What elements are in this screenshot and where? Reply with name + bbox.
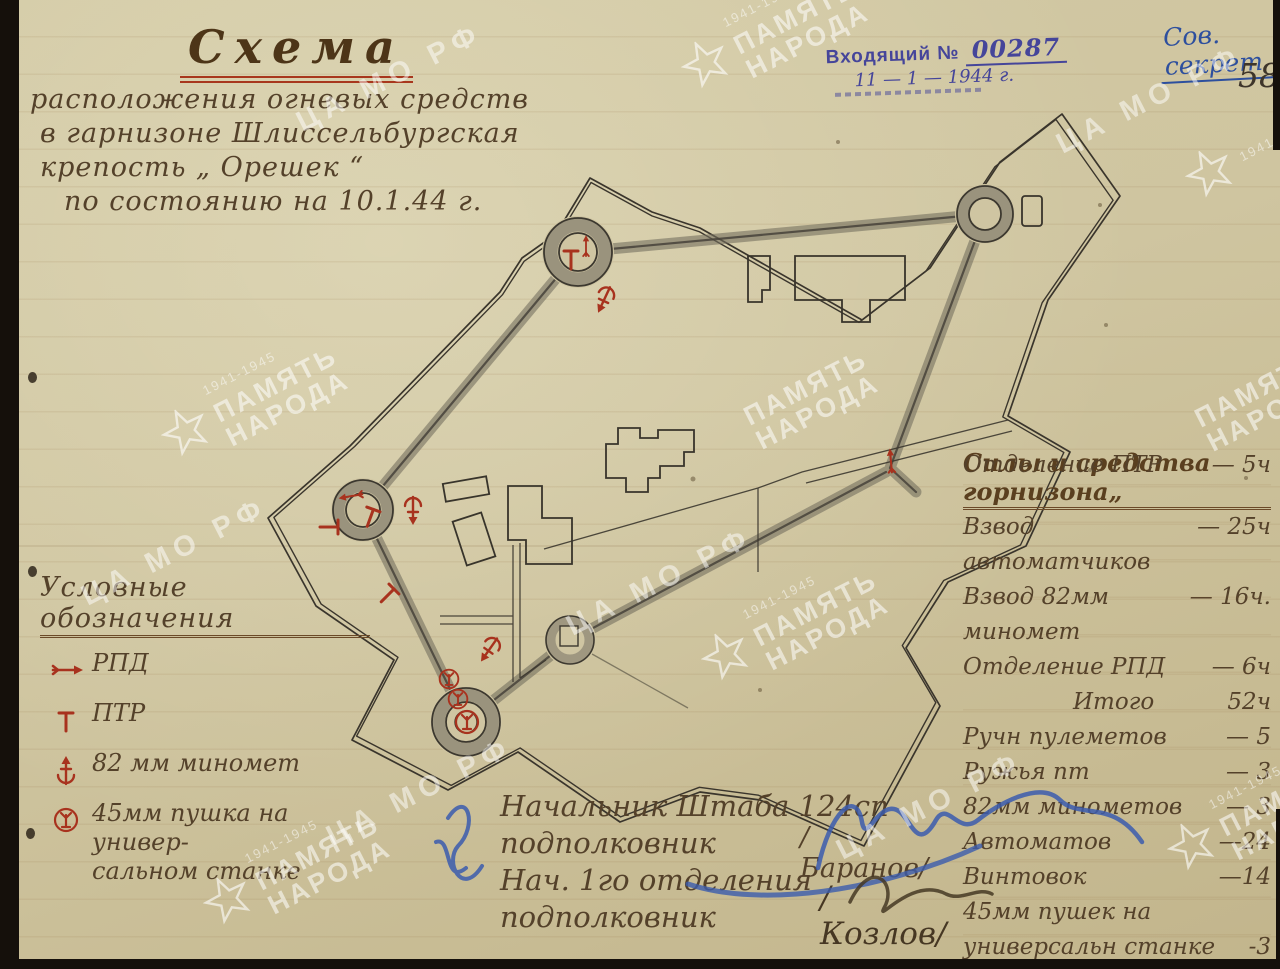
gun45-symbol-icon xyxy=(40,802,92,838)
forces-row-label: Взвод автоматчиков xyxy=(963,510,1197,580)
forces-row: Винтовок—14 xyxy=(963,860,1271,895)
forces-row: Автоматов—24 xyxy=(963,825,1271,860)
ptr-symbol-icon xyxy=(40,702,92,738)
mortar-map-symbol xyxy=(591,284,617,316)
title-block: Схема расположения огневых средств в гар… xyxy=(30,20,570,219)
rpd-symbol-icon xyxy=(40,652,92,688)
garrison-forces-list: Силы и средства горнизона„ Взвод автомат… xyxy=(963,448,1271,965)
tactical-symbols-layer xyxy=(320,235,895,733)
forces-row: Ручн пулеметов— 5 xyxy=(963,720,1271,755)
signature-name-2: /Козлов/ xyxy=(820,880,946,952)
forces-row-value: — 6ч xyxy=(1212,650,1271,685)
title-line-4: по состоянию на 10.1.44 г. xyxy=(30,185,570,219)
signature-name-1: /Баранов/ xyxy=(800,822,928,884)
forces-row-label: Винтовок xyxy=(963,860,1087,895)
legend-items: РПДПТР82 мм миномет45мм пушка на универ-… xyxy=(40,649,370,886)
scanned-document-page: Схема расположения огневых средств в гар… xyxy=(0,0,1280,969)
title-line-3: крепость „ Орешек “ xyxy=(30,151,570,185)
forces-row: Отделение РПД— 6ч xyxy=(963,650,1271,685)
forces-row-value: — 3 xyxy=(1226,790,1271,825)
forces-row-label: 45мм пушек на xyxy=(963,895,1151,930)
forces-row-value: — 3 xyxy=(1226,755,1271,790)
forces-row-value: — 25ч xyxy=(1197,510,1271,580)
mortar-symbol-icon xyxy=(40,752,92,788)
forces-row-value: — 5 xyxy=(1226,720,1271,755)
signature-role-1: Начальник Штаба 124сп xyxy=(500,788,889,825)
forces-row-value: —14 xyxy=(1219,860,1271,895)
forces-row-label: Итого xyxy=(1073,685,1154,720)
legend-item-label: ПТР xyxy=(92,699,145,728)
legend-item-rpd: РПД xyxy=(40,649,370,688)
mortar-map-symbol xyxy=(405,497,421,525)
forces-row-value: 52ч xyxy=(1227,685,1271,720)
forces-rows: Взвод автоматчиков— 25чВзвод 82мм миноме… xyxy=(963,510,1271,965)
legend-item-gun45: 45мм пушка на универ-сальном станке xyxy=(40,799,370,886)
incoming-registration-stamp: Входящий № 00287 11 — 1 — 1944 г. xyxy=(825,32,1068,97)
punch-hole xyxy=(26,828,35,839)
forces-row-value: —24 xyxy=(1219,825,1271,860)
forces-row-value: — 16ч. xyxy=(1190,580,1271,650)
signature-block: Начальник Штаба 124сп подполковник Нач. … xyxy=(500,788,889,936)
scan-edge-bottom xyxy=(0,959,1280,969)
legend-item-label: РПД xyxy=(92,649,149,678)
punch-hole xyxy=(28,566,37,577)
punch-hole xyxy=(28,372,37,383)
forces-row: 45мм пушек на xyxy=(963,895,1271,930)
forces-row: 82мм минометов— 3 xyxy=(963,790,1271,825)
forces-row: Ружья пт— 3 xyxy=(963,755,1271,790)
forces-row-label: Ручн пулеметов xyxy=(963,720,1167,755)
legend-item-ptr: ПТР xyxy=(40,699,370,738)
forces-row: Взвод 82мм миномет— 16ч. xyxy=(963,580,1271,650)
legend-item-mortar: 82 мм миномет xyxy=(40,749,370,788)
forces-row-label: Ружья пт xyxy=(963,755,1090,790)
forces-row-label: 82мм минометов xyxy=(963,790,1182,825)
scan-edge-right-bottom xyxy=(1276,809,1280,969)
legend-item-label: 45мм пушка на универ-сальном станке xyxy=(92,799,370,886)
forces-row: Итого52ч xyxy=(963,685,1271,720)
legend-item-label: 82 мм миномет xyxy=(92,749,300,778)
scan-edge-left xyxy=(0,0,19,969)
legend-title: Условные обозначения xyxy=(40,572,370,638)
forces-row-label: Отделение РПД xyxy=(963,650,1165,685)
title-line-2: в гарнизоне Шлиссельбургская xyxy=(30,117,570,151)
stamp-number: 00287 xyxy=(965,32,1067,66)
forces-row-label: Автоматов xyxy=(963,825,1111,860)
document-title: Схема xyxy=(180,20,413,83)
fortress-towers xyxy=(331,184,1015,758)
stamp-label: Входящий № xyxy=(825,43,960,69)
scan-edge-right-top xyxy=(1273,0,1280,150)
forces-row-label: Взвод 82мм миномет xyxy=(963,580,1190,650)
forces-row: Взвод автоматчиков— 25ч xyxy=(963,510,1271,580)
mortar-map-symbol xyxy=(474,634,503,666)
title-line-1: расположения огневых средств xyxy=(30,83,570,117)
forces-title: Силы и средства горнизона„ xyxy=(963,448,1271,510)
map-legend: Условные обозначения РПДПТР82 мм миномет… xyxy=(40,572,370,886)
